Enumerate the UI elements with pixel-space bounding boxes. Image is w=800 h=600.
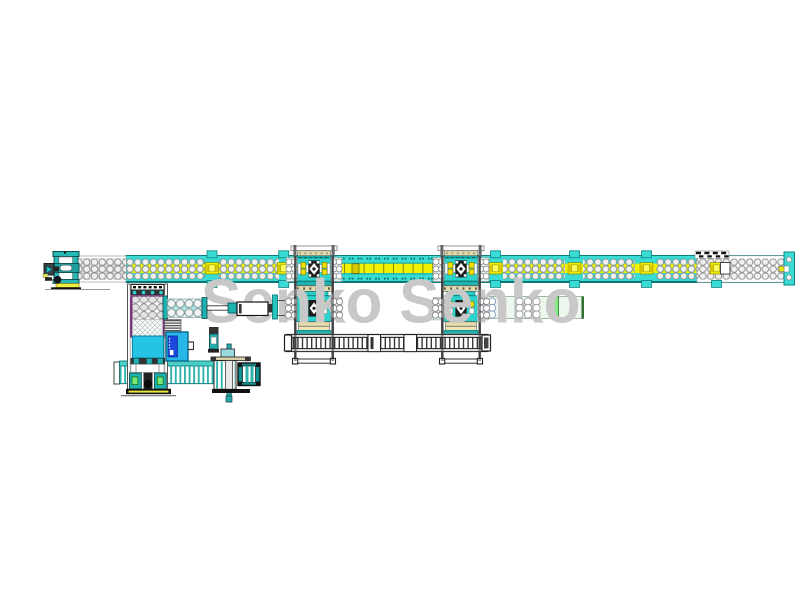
svg-text:Senko Senko: Senko Senko (201, 267, 581, 336)
